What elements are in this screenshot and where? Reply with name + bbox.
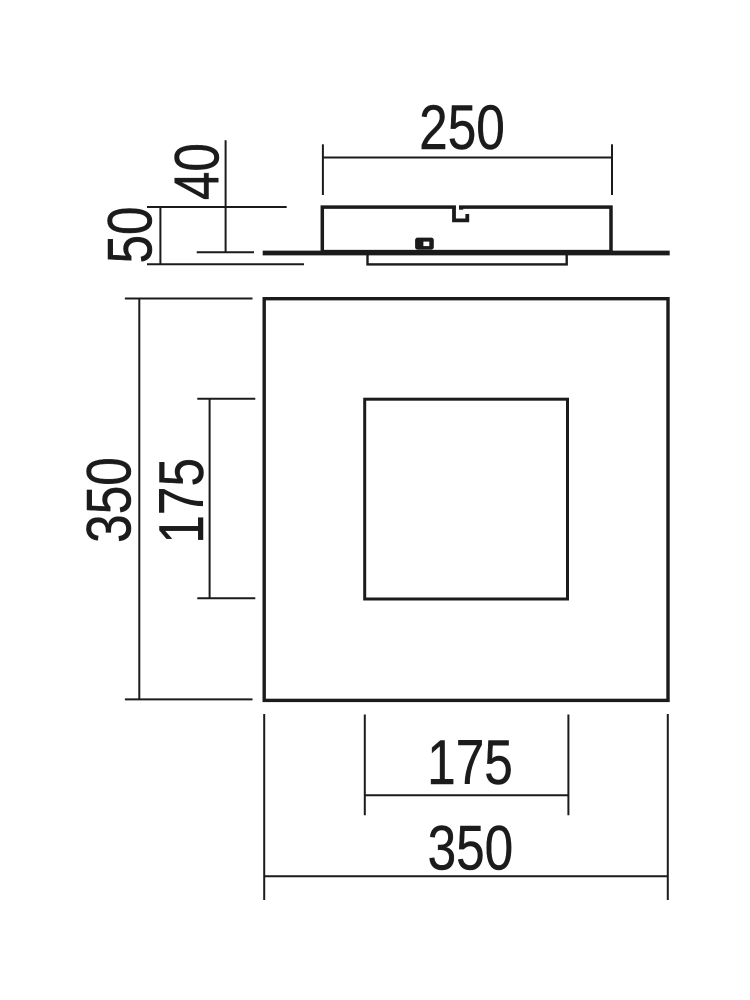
svg-text:350: 350 — [74, 457, 144, 543]
svg-text:175: 175 — [427, 728, 513, 798]
svg-text:250: 250 — [419, 93, 505, 163]
svg-text:350: 350 — [428, 814, 514, 884]
svg-text:40: 40 — [163, 143, 233, 200]
svg-text:50: 50 — [96, 206, 166, 263]
svg-text:175: 175 — [147, 458, 217, 544]
